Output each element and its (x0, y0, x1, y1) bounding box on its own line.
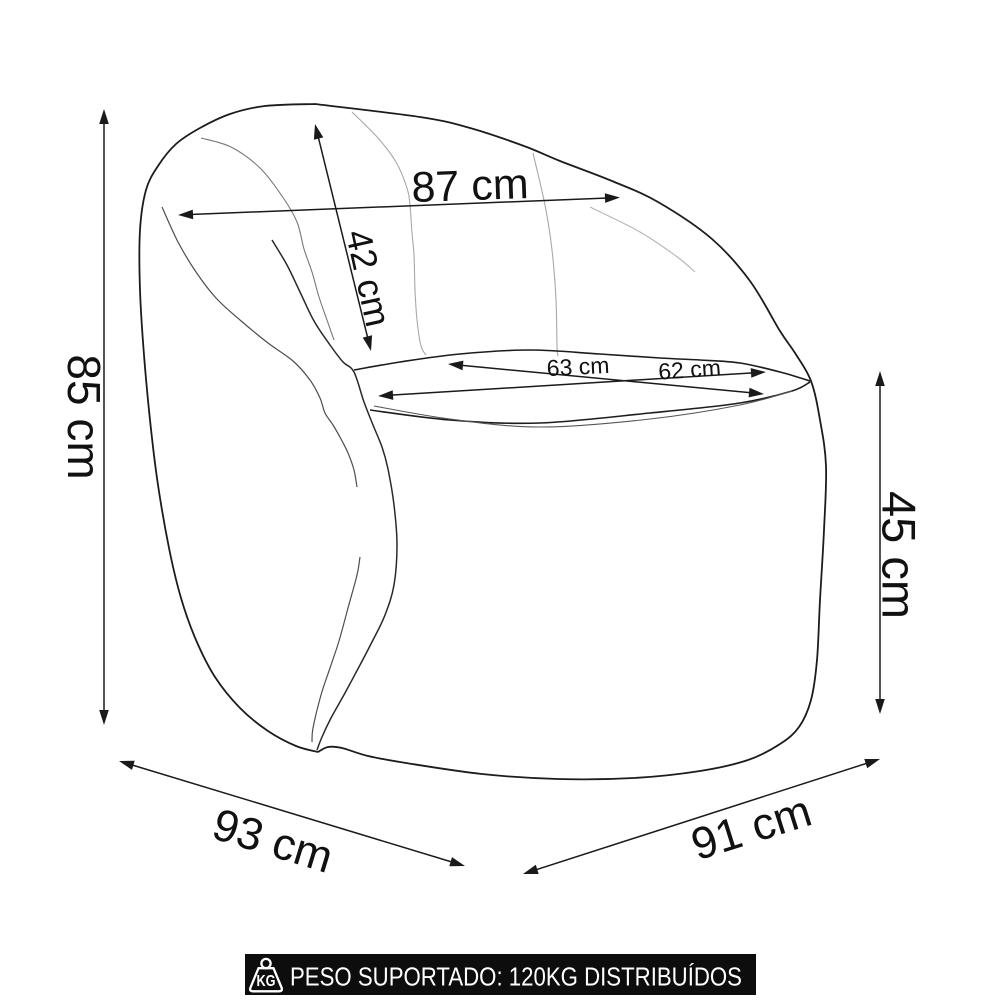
svg-text:45 cm: 45 cm (873, 491, 926, 619)
svg-text:93 cm: 93 cm (207, 798, 339, 883)
svg-text:91 cm: 91 cm (685, 785, 817, 870)
svg-text:87 cm: 87 cm (411, 160, 530, 212)
svg-text:63 cm: 63 cm (546, 352, 610, 381)
svg-text:85 cm: 85 cm (58, 354, 110, 479)
svg-text:PESO SUPORTADO: 120KG DISTRIBU: PESO SUPORTADO: 120KG DISTRIBUÍDOS (290, 963, 742, 992)
svg-text:KG: KG (257, 973, 276, 990)
svg-text:62 cm: 62 cm (657, 354, 721, 384)
svg-text:42 cm: 42 cm (338, 226, 399, 331)
